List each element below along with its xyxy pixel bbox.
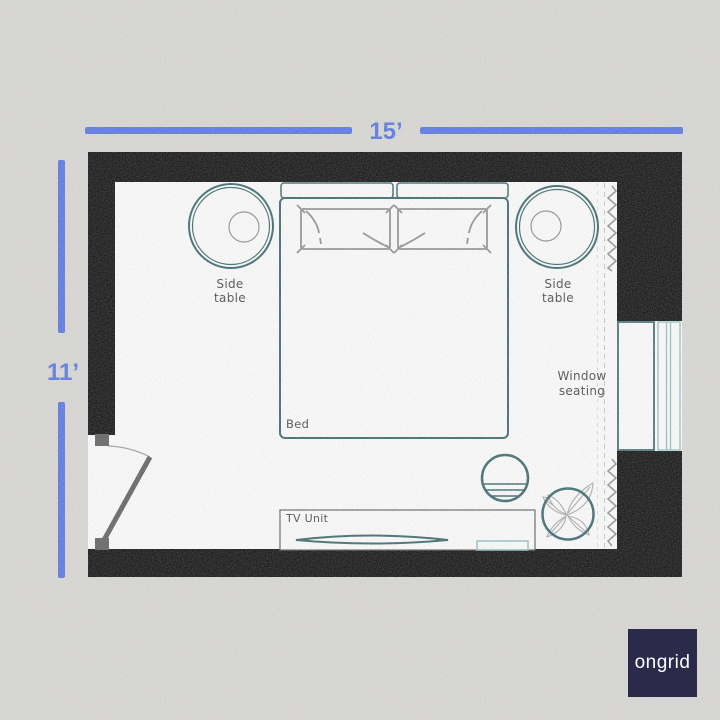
noise-texture-light [0, 0, 720, 720]
floor-plan-canvas: 15’ 11’ Side table Side table [0, 0, 720, 720]
ongrid-logo-text: ongrid [635, 652, 691, 674]
floor-plan-drawing: 15’ 11’ Side table Side table [0, 0, 720, 720]
ongrid-logo: ongrid [628, 629, 697, 697]
